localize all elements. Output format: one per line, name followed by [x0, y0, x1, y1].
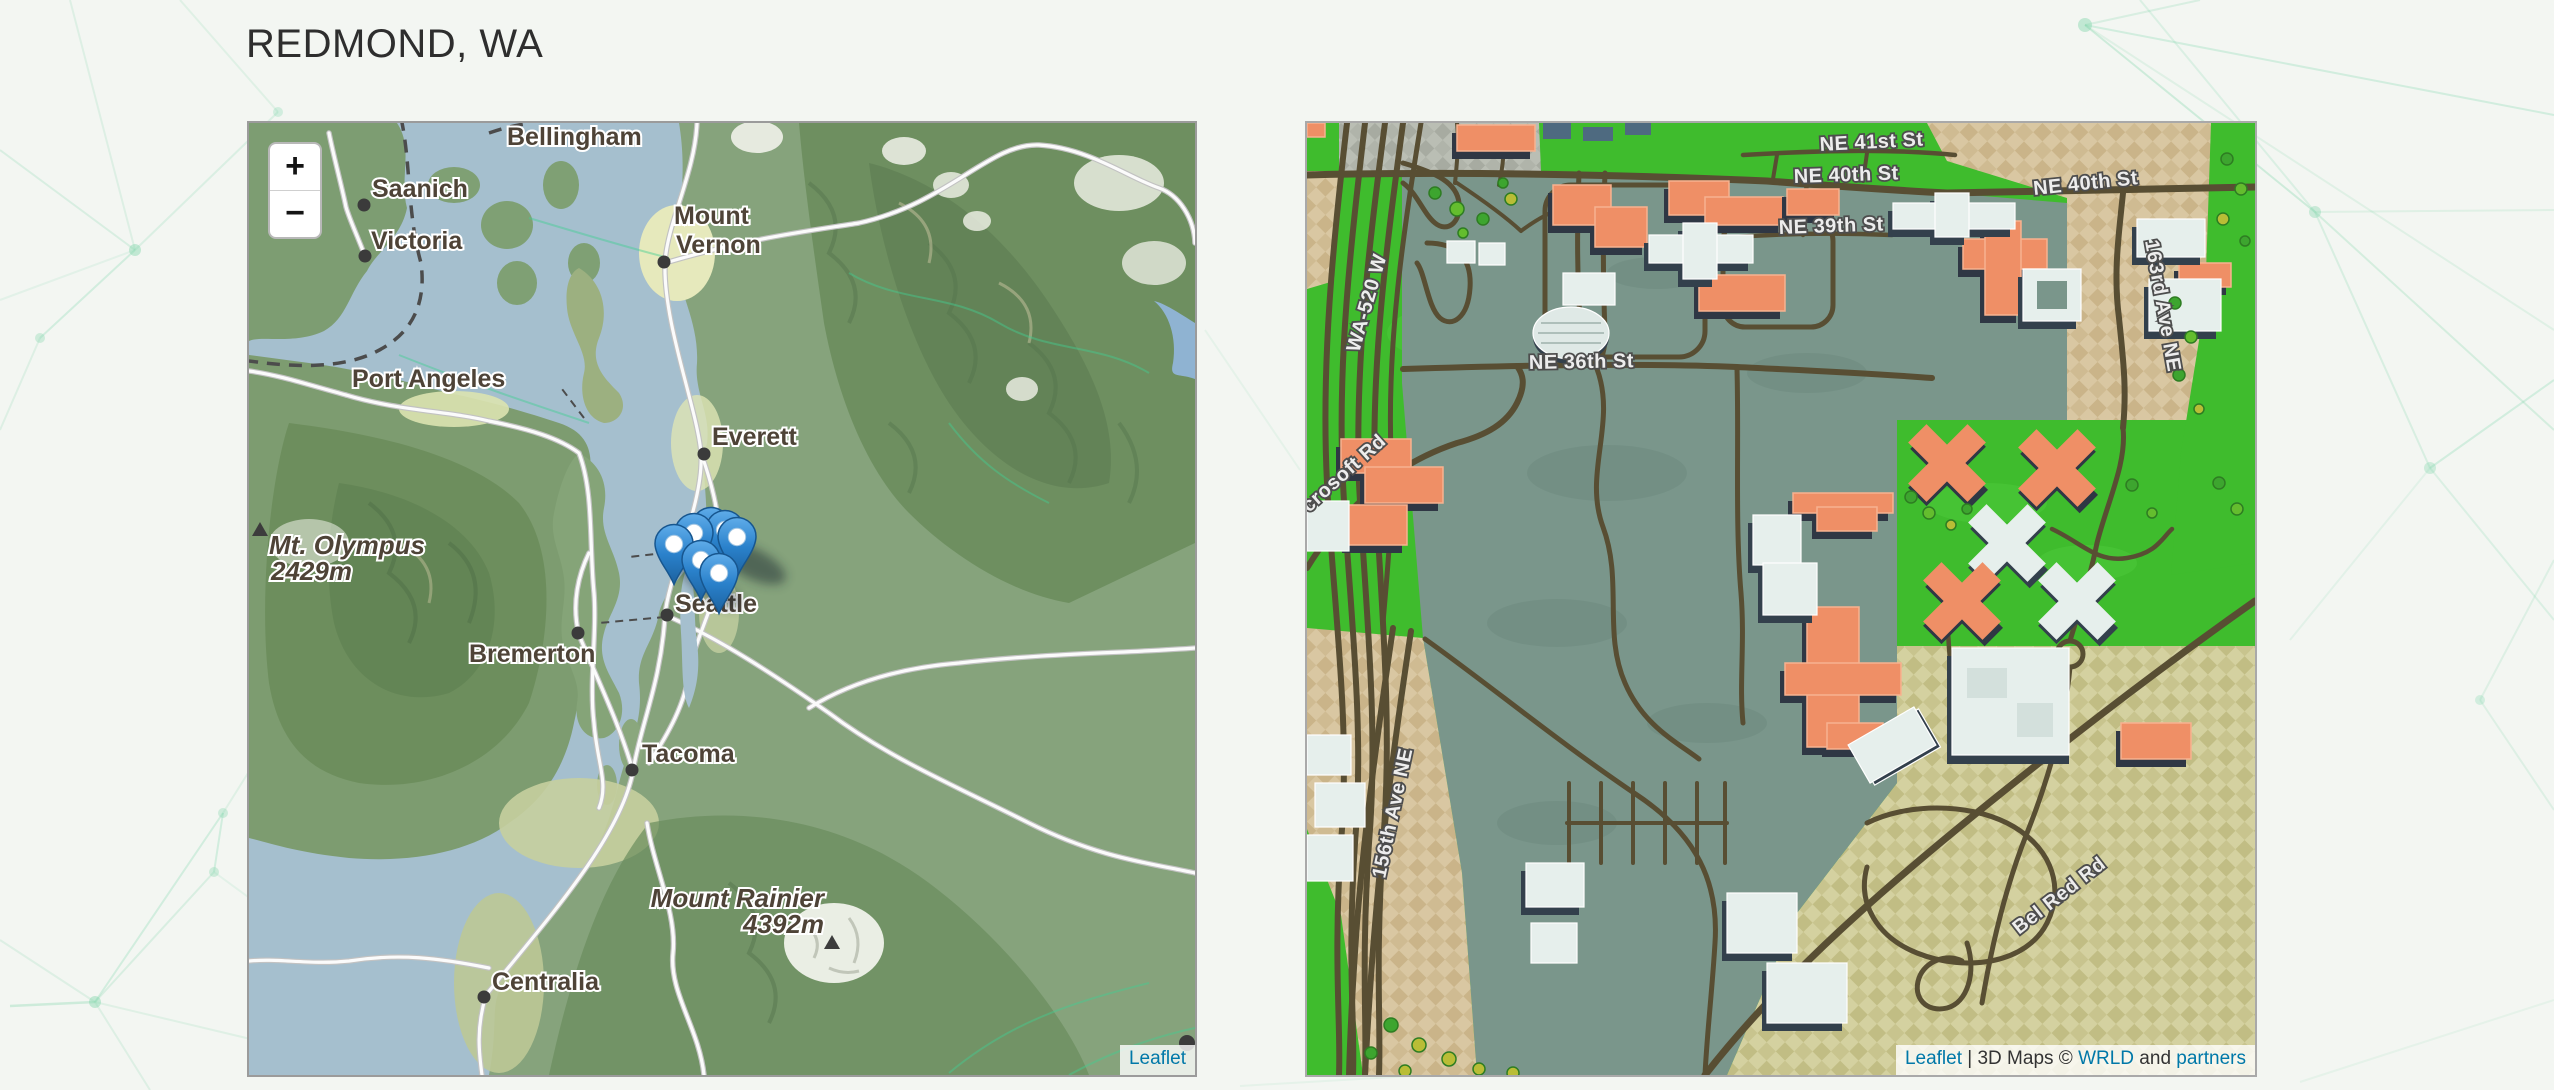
street-label-ne-36th: NE 36th St — [1529, 350, 1634, 374]
label-port-angeles: Port Angeles — [352, 365, 505, 393]
leaflet-link[interactable]: Leaflet — [1905, 1048, 1962, 1069]
leaflet-link[interactable]: Leaflet — [1129, 1048, 1186, 1069]
label-olympus-elevation: 2429m — [270, 556, 352, 586]
label-tacoma: Tacoma — [642, 740, 736, 768]
label-saanich: Saanich — [372, 175, 468, 203]
right-map-attribution: Leaflet | 3D Maps © WRLD and partners — [1896, 1045, 2255, 1075]
label-mount-vernon-line1: Mount — [674, 202, 750, 230]
left-map-attribution: Leaflet — [1120, 1045, 1195, 1075]
terrain-map-canvas: Bellingham Saanich Victoria Mount Vernon… — [249, 123, 1195, 1075]
redmond-3d-map[interactable]: NE 41st St NE 40th St NE 40th St NE 39th… — [1305, 121, 2257, 1077]
attribution-text: | 3D Maps © — [1962, 1048, 2078, 1069]
attribution-and: and — [2134, 1048, 2176, 1069]
zoom-out-button[interactable]: − — [270, 190, 320, 237]
label-mount-vernon-line2: Vernon — [676, 231, 761, 259]
label-victoria: Victoria — [371, 227, 463, 255]
label-rainier-elevation: 4392m — [742, 909, 824, 939]
label-bellingham: Bellingham — [507, 123, 642, 151]
label-bremerton: Bremerton — [469, 640, 595, 668]
wrld-map-canvas: NE 41st St NE 40th St NE 40th St NE 39th… — [1307, 123, 2255, 1075]
wrld-link[interactable]: WRLD — [2078, 1048, 2134, 1069]
partners-link[interactable]: partners — [2176, 1048, 2246, 1069]
zoom-in-button[interactable]: + — [270, 144, 320, 190]
overview-map[interactable]: Bellingham Saanich Victoria Mount Vernon… — [247, 121, 1197, 1077]
street-label-ne-39th: NE 39th St — [1778, 213, 1884, 239]
page: REDMOND, WA — [0, 0, 2554, 1090]
label-centralia: Centralia — [492, 968, 600, 996]
zoom-control: + − — [268, 142, 322, 239]
page-title: REDMOND, WA — [246, 22, 543, 67]
label-everett: Everett — [712, 423, 797, 451]
street-label-ne-40th-west: NE 40th St — [1793, 162, 1899, 188]
